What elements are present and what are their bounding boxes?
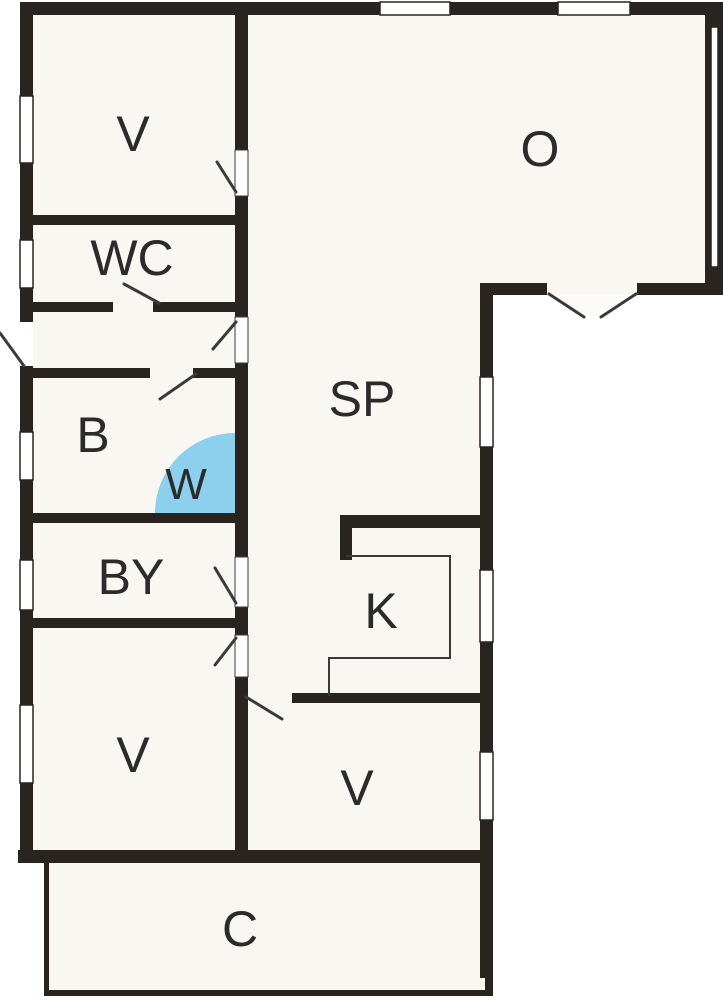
room-label-carport: C [222,901,258,957]
wall-v-wc [20,215,248,225]
window-bedroom-left [20,705,33,783]
room-label-lounge: O [521,121,560,177]
carport-floor [44,863,493,996]
window-kitchen-right [480,570,493,642]
window-lounge-right [711,27,718,267]
room-label-bedroom-left: V [116,727,150,783]
wall-spine [235,13,248,850]
door-panel-bedroom-left [235,635,248,677]
window-v-top [20,96,33,163]
wall-bottom [18,850,493,863]
room-label-bathroom: B [76,407,109,463]
window-wc [20,240,33,288]
window-utility [20,560,33,610]
carport-wall-bottom [44,990,493,996]
door-panel-v-lounge [235,150,248,196]
window-sp-right [480,377,493,447]
carport-wall-right-stub [485,978,493,994]
bathroom-door-opening [150,368,193,378]
room-label-utility: BY [98,549,165,605]
wall-kitchen-top [340,515,480,528]
room-label-bedroom-top-left: V [116,106,150,162]
entry-door-opening [20,322,33,366]
room-label-dining: SP [329,371,396,427]
room-label-wc: WC [90,230,173,286]
window-bedroom-bottom [480,752,493,820]
room-label-shower: W [165,460,207,509]
window-lounge-top-1 [380,2,450,15]
floor-plan-canvas: V WC B W BY V SP K O V C [0,0,723,1000]
carport-wall-left [44,863,49,996]
wall-bathroom-utility [20,513,248,523]
window-lounge-top-2 [558,2,630,15]
door-panel-utility [235,557,248,607]
patio-door-opening [547,283,637,295]
door-panel-hall-sp [235,317,248,363]
room-label-kitchen: K [364,583,397,639]
floor-plan-drawing: V WC B W BY V SP K O V C [0,0,723,1000]
wall-hall-bathroom [33,368,248,378]
wc-door-opening [113,302,153,312]
wall-utility-bedroom [20,618,248,628]
window-bathroom [20,432,33,480]
room-label-bedroom-bottom: V [340,760,374,816]
wall-kitchen-stub [340,515,352,560]
carport-wall-right [480,863,493,978]
